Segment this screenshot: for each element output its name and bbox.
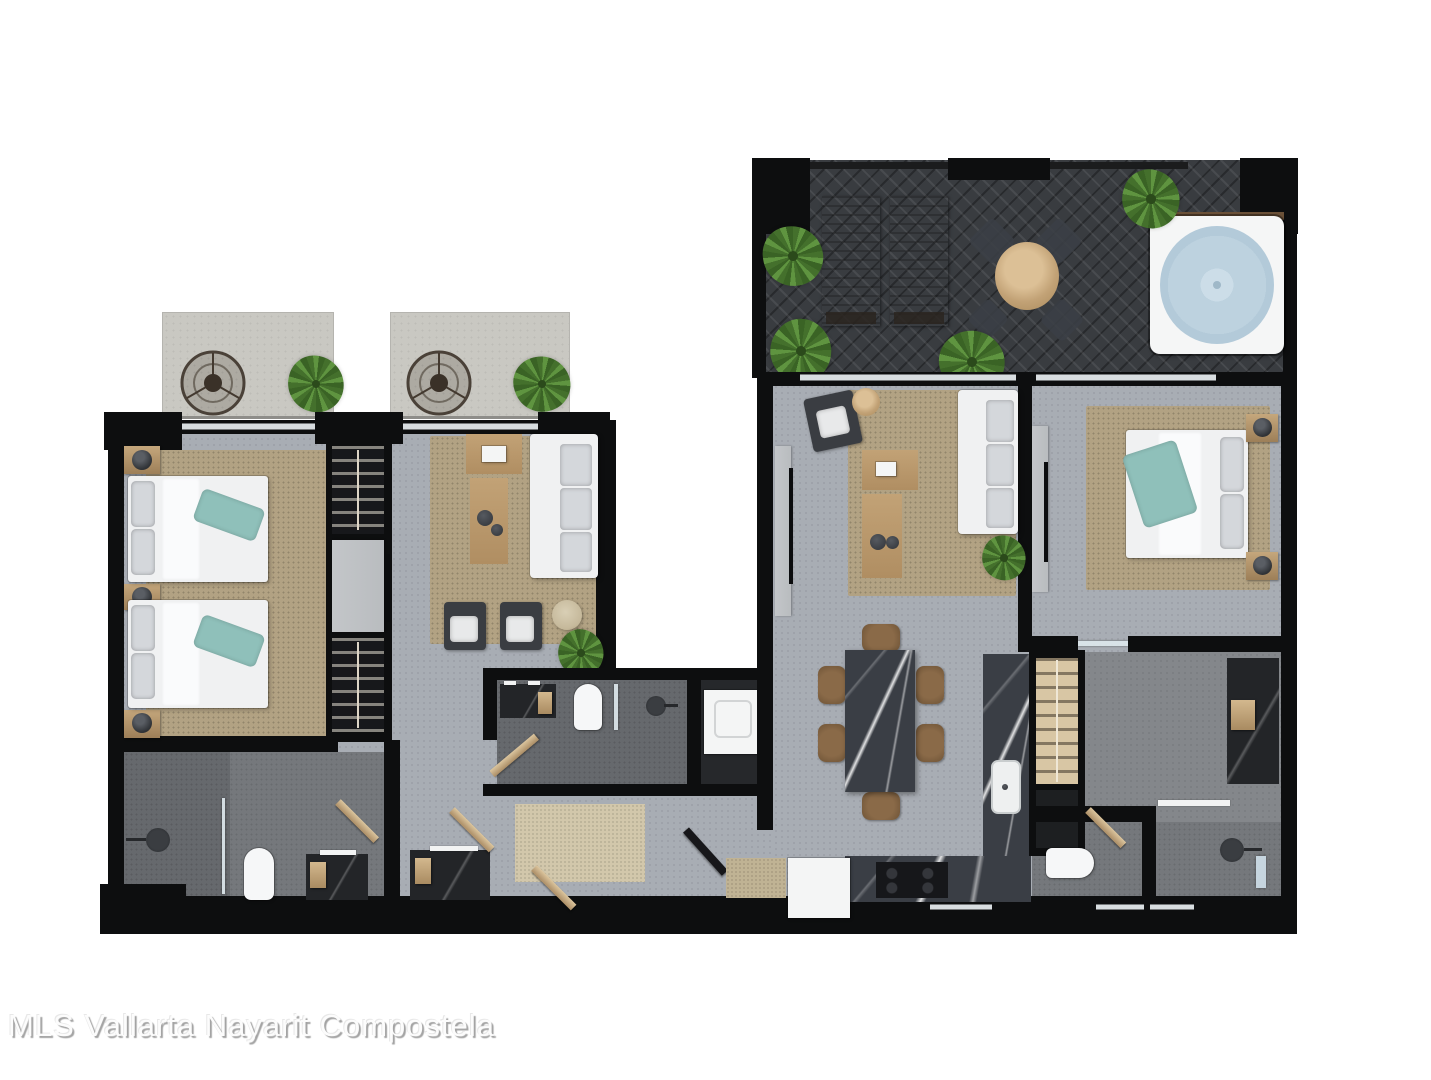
tv [789, 468, 793, 584]
wall-east-right-unit [1281, 372, 1297, 934]
sofa-cushion [986, 444, 1014, 486]
window-bedroom-terrace [1036, 374, 1216, 381]
wardrobe-rail [357, 450, 359, 530]
dining-chair [818, 666, 846, 704]
wall-bedroom-bath [108, 736, 338, 752]
tv [1044, 462, 1048, 562]
sofa-cushion [560, 532, 592, 572]
terrace-wall-right [1283, 232, 1297, 378]
window-bath [1096, 904, 1144, 910]
vanity-stool [310, 862, 326, 888]
table-decor [491, 524, 503, 536]
sofa-cushion [560, 444, 592, 486]
dresser [332, 540, 384, 632]
patio-table [995, 242, 1059, 310]
towel [504, 681, 516, 685]
pillow [131, 529, 155, 575]
hanging-chair-icon [404, 348, 474, 418]
sofa-cushion [560, 488, 592, 530]
towel-rail [430, 846, 478, 851]
shower-head [146, 828, 170, 852]
table-lamp [132, 450, 152, 470]
hot-tub-jet [1213, 281, 1221, 289]
dining-chair [916, 724, 944, 762]
shower-head [1220, 838, 1244, 862]
window-bedroom-balcony [172, 423, 318, 430]
dining-chair [818, 724, 846, 762]
tv [385, 554, 390, 622]
shower-head [646, 696, 666, 716]
tabletop-tv [482, 446, 506, 462]
shower-arm [126, 838, 146, 841]
shower-niche [1256, 856, 1266, 888]
terrace-pier-tl [752, 158, 810, 234]
terrace-railing [1050, 162, 1188, 169]
duvet [162, 602, 200, 706]
sun-lounger-foot [826, 312, 876, 324]
pier-top-left [104, 412, 182, 450]
table-decor [876, 462, 896, 476]
pillow [1220, 494, 1244, 549]
sofa-cushion [986, 488, 1014, 528]
sun-lounger [822, 196, 880, 326]
closet-wall-bottom [326, 732, 392, 742]
towel-rail [320, 850, 356, 855]
midbath-laundry-divider [687, 680, 701, 784]
wall-bath-vanity [384, 740, 400, 898]
toilet [574, 684, 602, 730]
closet-rail [1056, 660, 1058, 782]
wall-west-right-unit [757, 372, 773, 830]
pillow [131, 653, 155, 699]
vanity-stool [415, 858, 431, 884]
armchair-cushion [506, 616, 534, 642]
sofa-cushion [986, 400, 1014, 442]
shower-glass [614, 684, 618, 730]
midbath-wall-left [483, 680, 497, 740]
refrigerator [788, 858, 850, 918]
wall-bottom-left-unit [108, 896, 776, 934]
dining-table [845, 650, 915, 792]
faucet [1002, 784, 1008, 790]
pouf [552, 600, 582, 630]
bath-sliding-door [1078, 641, 1128, 646]
washer-door [714, 700, 752, 738]
towel-rail [1158, 800, 1230, 806]
toilet [244, 848, 274, 900]
table-lamp [1253, 556, 1272, 575]
pillow [131, 481, 155, 527]
sun-lounger-foot [894, 312, 944, 324]
stove [876, 862, 948, 898]
table-decor [870, 534, 886, 550]
dining-chair [916, 666, 944, 704]
wall-west [108, 420, 124, 934]
wardrobe-rail [357, 642, 359, 728]
armchair-cushion [450, 616, 478, 642]
left-shower-floor [124, 752, 230, 898]
table-lamp [132, 713, 152, 733]
window-bath [1150, 904, 1194, 910]
vanity-stool [1231, 700, 1255, 730]
table-decor [886, 536, 899, 549]
side-table [852, 388, 880, 416]
midbath-wall-top [483, 668, 775, 680]
vanity-stool [538, 692, 552, 714]
toilet [1046, 848, 1094, 878]
shower-arm [664, 704, 678, 707]
terrace-railing [810, 162, 948, 169]
pillow [1220, 437, 1244, 492]
wall-living-bedroom [1018, 384, 1032, 636]
pier-bottom-left [100, 884, 186, 934]
terrace-pier-top [948, 158, 1050, 180]
entry-doormat [726, 858, 786, 898]
hanging-chair-icon [178, 348, 248, 418]
dining-chair [862, 624, 900, 652]
shower-glass [222, 798, 225, 894]
sun-lounger [890, 196, 948, 326]
duvet [162, 478, 200, 580]
midbath-wall-bottom [483, 784, 775, 796]
table-lamp [1253, 418, 1272, 437]
wall-bedroom-bath [1128, 636, 1297, 652]
toilet-shower-divider [1142, 806, 1156, 898]
dining-chair [862, 792, 900, 820]
towel [528, 681, 540, 685]
pillow [131, 605, 155, 651]
table-decor [477, 510, 493, 526]
watermark-text: MLS Vallarta Nayarit Compostela [8, 1008, 495, 1044]
floor-plan: MLS Vallarta Nayarit Compostela [0, 0, 1431, 1080]
window-kitchen [930, 904, 992, 910]
window-living-terrace [800, 374, 1016, 381]
shower-arm [1244, 848, 1262, 851]
